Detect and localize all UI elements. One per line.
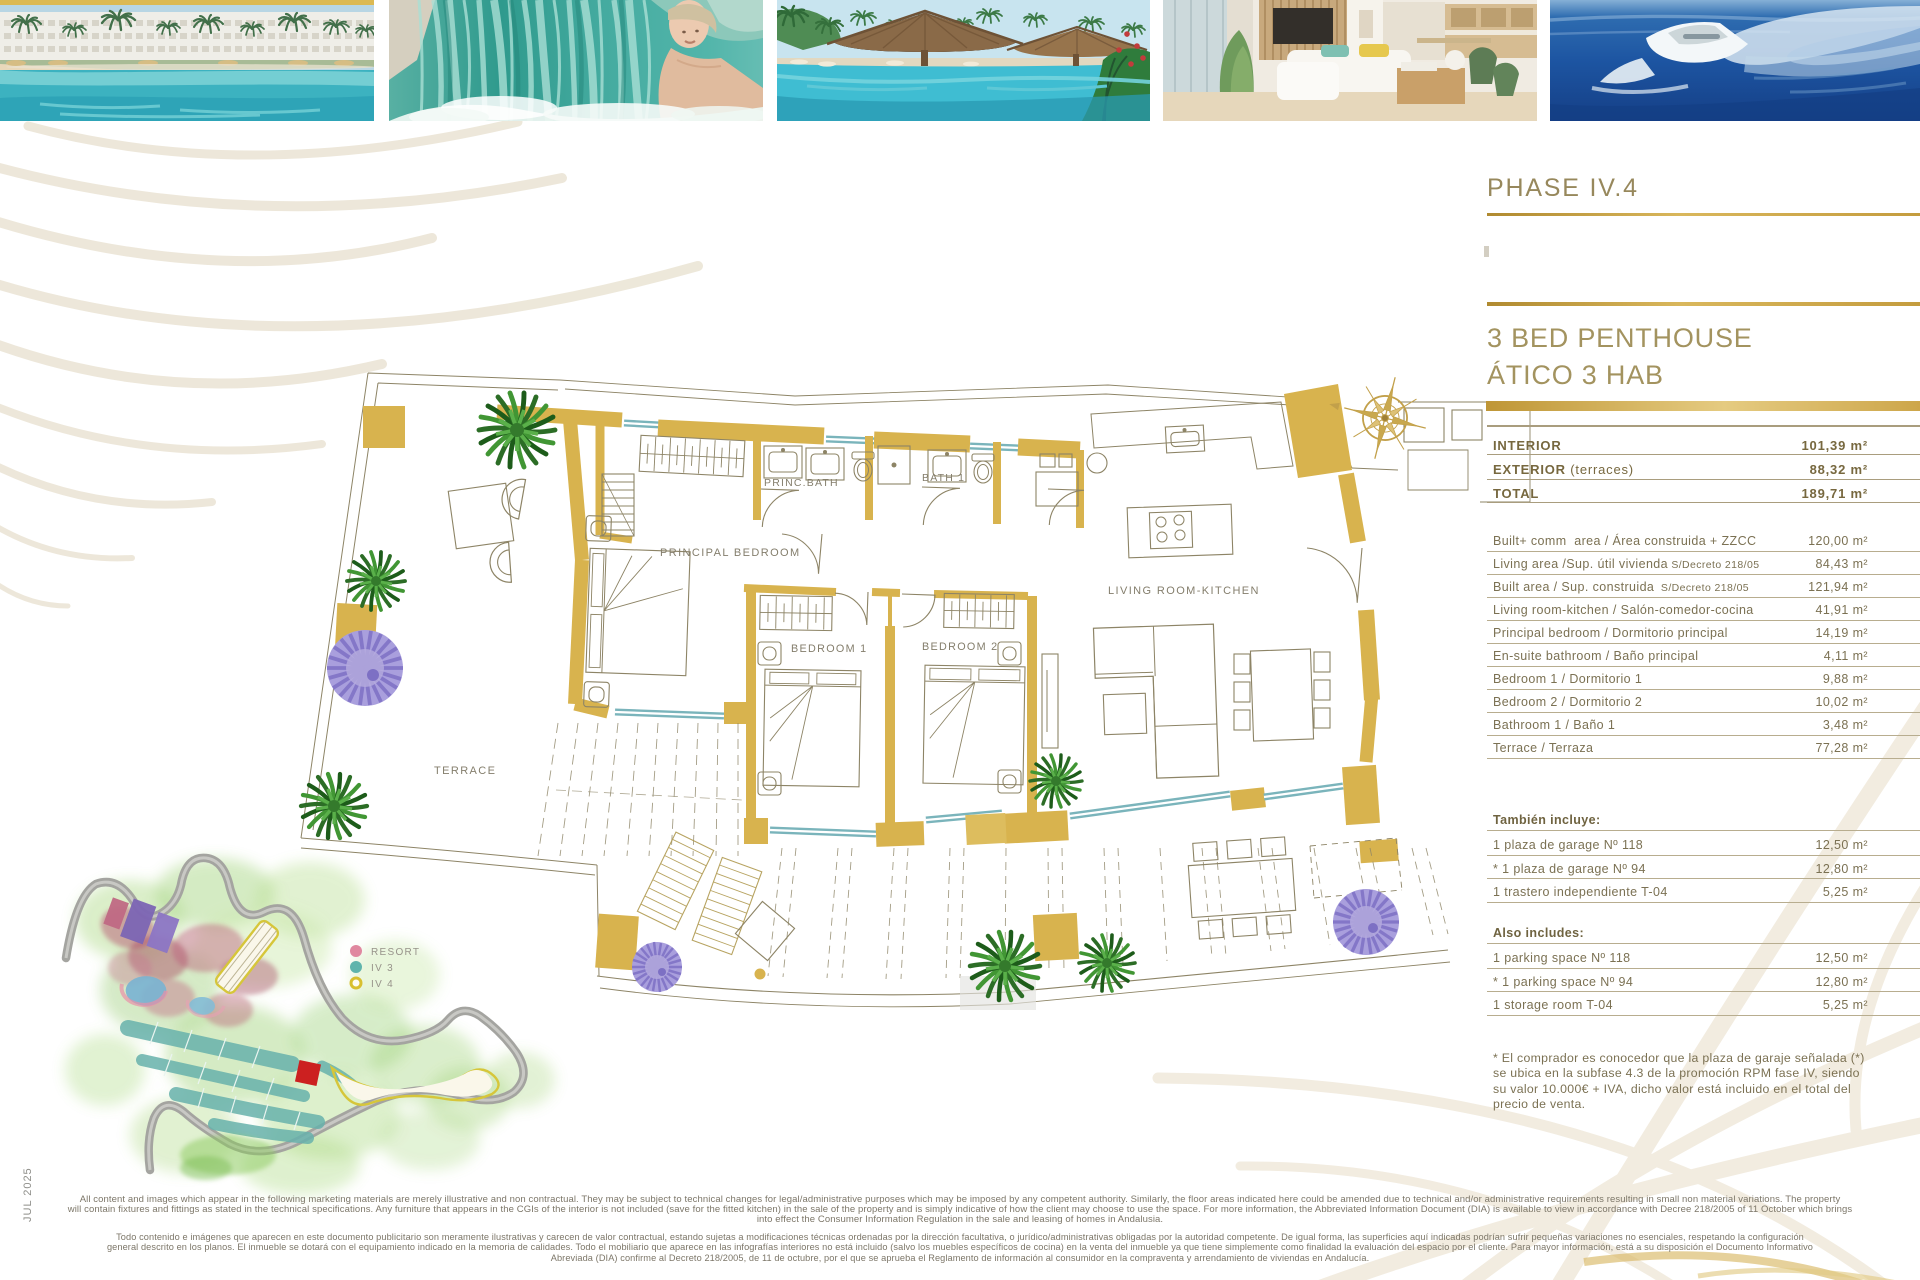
svg-text:RESORT: RESORT — [371, 947, 420, 958]
svg-text:IV 4: IV 4 — [371, 979, 394, 990]
svg-text:IV 3: IV 3 — [371, 963, 394, 974]
